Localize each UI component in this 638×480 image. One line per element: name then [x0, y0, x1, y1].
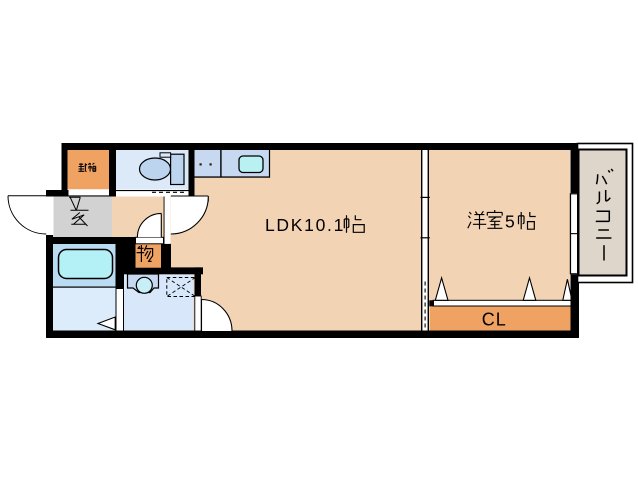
svg-text:LDK10.1: LDK10.1	[265, 215, 345, 235]
svg-text:CL: CL	[482, 310, 507, 330]
svg-text:5: 5	[505, 211, 515, 231]
